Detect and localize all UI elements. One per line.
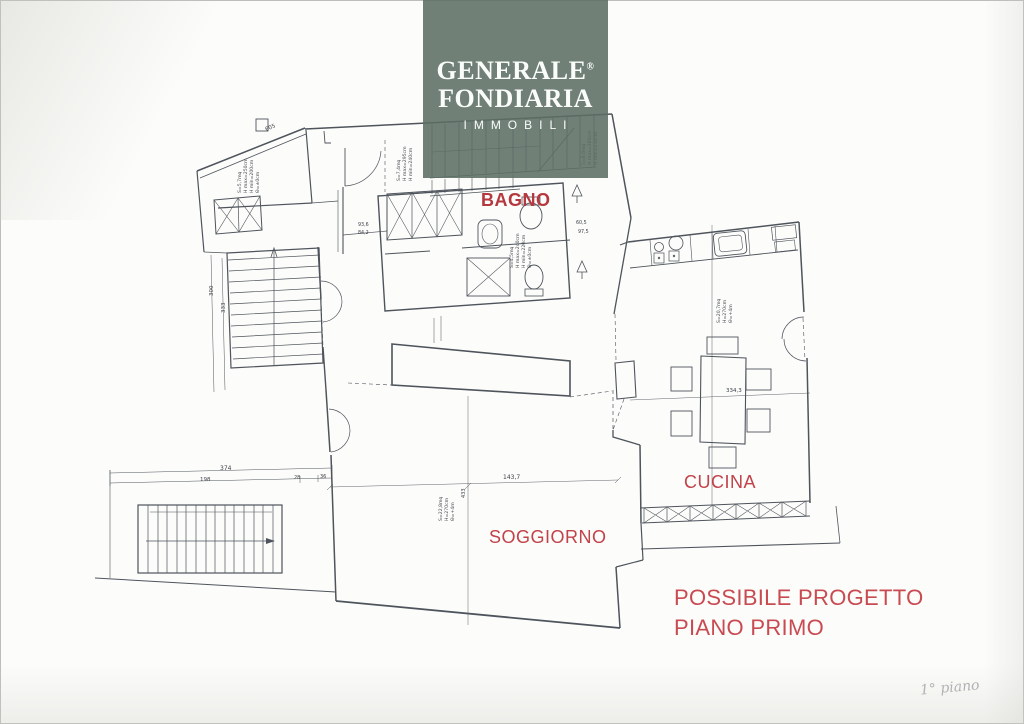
svg-text:Θ=+4m: Θ=+4m [728, 304, 734, 323]
kitchen [620, 222, 840, 549]
room-label-bagno: BAGNO [481, 190, 551, 211]
svg-text:198: 198 [200, 477, 211, 483]
svg-text:H=270cm: H=270cm [722, 299, 728, 323]
room-label-cucina: CUCINA [684, 472, 756, 493]
svg-text:S=4,5mq: S=4,5mq [509, 246, 515, 268]
svg-text:97,5: 97,5 [578, 229, 589, 235]
svg-text:S=22,8mq: S=22,8mq [438, 497, 444, 521]
logo-line-generale: GENERALE® [437, 57, 595, 85]
svg-text:H max=250cm: H max=250cm [243, 158, 249, 193]
soggiorno-room [326, 390, 643, 628]
project-note-line1: POSSIBILE PROGETTO [674, 583, 924, 613]
chair [709, 447, 736, 468]
svg-text:H min=200cm: H min=200cm [249, 159, 255, 193]
dining-table [700, 356, 746, 444]
svg-text:H max=240cm: H max=240cm [515, 233, 521, 268]
room-label-soggiorno: SOGGIORNO [489, 527, 607, 548]
registered-mark: ® [586, 61, 594, 72]
svg-text:S=20,7mq: S=20,7mq [716, 299, 722, 323]
svg-text:605: 605 [265, 123, 277, 133]
logo-line-fondiaria: FONDIARIA [438, 85, 593, 113]
svg-text:93,6: 93,6 [358, 222, 369, 228]
svg-text:H=270cm: H=270cm [444, 497, 450, 521]
svg-text:143,7: 143,7 [503, 474, 520, 481]
chair [671, 367, 692, 391]
project-note-line2: PIANO PRIMO [674, 613, 924, 643]
level-marker-1 [572, 185, 582, 203]
chair [671, 411, 692, 436]
external-staircase [95, 465, 336, 592]
stove-burner-large [669, 236, 683, 250]
svg-text:Θ=±0cm: Θ=±0cm [527, 246, 533, 268]
svg-text:374: 374 [220, 465, 232, 472]
svg-text:Θ=+4m: Θ=+4m [450, 502, 456, 521]
svg-text:Θ=±0cm: Θ=±0cm [255, 171, 261, 193]
svg-text:60,5: 60,5 [576, 220, 587, 226]
logo-line-immobili: IMMOBILI [457, 118, 573, 132]
svg-text:36: 36 [320, 474, 326, 480]
scanned-floorplan-page: 605 374 198 28 36 300 333 143,7 433 334,… [0, 0, 1024, 724]
chair [747, 409, 770, 432]
chair [746, 369, 771, 390]
level-marker-2 [577, 261, 587, 279]
structural-wall-slab [348, 344, 612, 397]
svg-text:300: 300 [209, 285, 215, 296]
svg-text:333: 333 [221, 302, 227, 313]
svg-text:H min=240cm: H min=240cm [408, 147, 414, 181]
svg-text:S=5,7mq: S=5,7mq [237, 171, 243, 193]
svg-text:H max=295cm: H max=295cm [402, 146, 408, 181]
stove-burner-small [655, 243, 664, 252]
chair [707, 337, 738, 354]
dimension-labels: 605 374 198 28 36 300 333 143,7 433 334,… [200, 123, 742, 498]
svg-text:S=7,4mq: S=7,4mq [396, 159, 402, 181]
project-note: POSSIBILE PROGETTO PIANO PRIMO [674, 583, 924, 643]
svg-text:84,2: 84,2 [358, 230, 369, 236]
agency-logo: GENERALE® FONDIARIA IMMOBILI [423, 0, 608, 178]
svg-text:433: 433 [461, 488, 467, 498]
svg-text:28: 28 [294, 475, 300, 481]
svg-text:334,3: 334,3 [726, 388, 742, 394]
svg-text:H min=220cm: H min=220cm [521, 234, 527, 268]
